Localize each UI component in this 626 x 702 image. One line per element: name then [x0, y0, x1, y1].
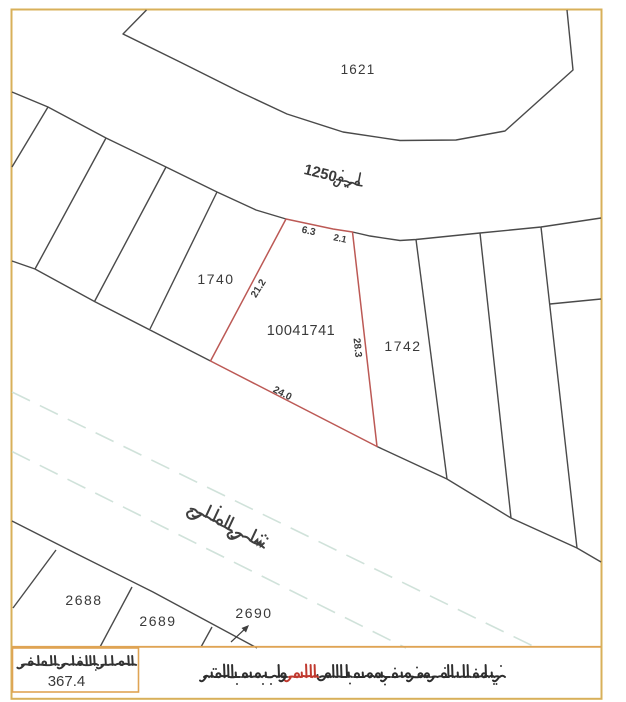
svg-text:1621: 1621: [341, 62, 376, 77]
svg-text:21.2: 21.2: [249, 277, 269, 300]
svg-text:24.0: 24.0: [271, 384, 294, 403]
svg-text:10041741: 10041741: [267, 323, 336, 339]
svg-text:367.4: 367.4: [48, 673, 86, 690]
svg-text:1250: 1250: [302, 161, 338, 186]
svg-text:6.3: 6.3: [301, 225, 317, 239]
svg-text:2.1: 2.1: [332, 232, 348, 246]
svg-text:2690: 2690: [235, 605, 272, 621]
svg-text:1740: 1740: [197, 271, 234, 287]
svg-text:2689: 2689: [139, 613, 176, 629]
svg-text:28.3: 28.3: [350, 337, 363, 358]
svg-text:1742: 1742: [384, 338, 421, 354]
svg-text:2688: 2688: [65, 592, 102, 608]
